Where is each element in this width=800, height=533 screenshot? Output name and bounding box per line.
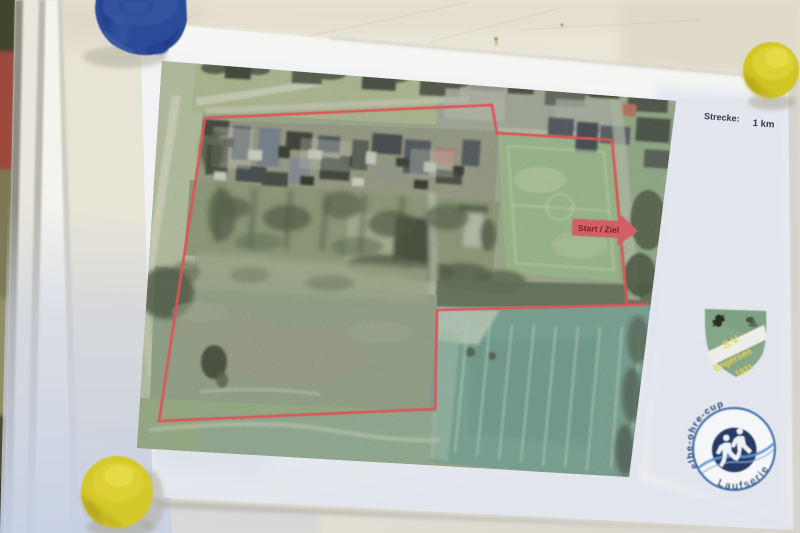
svg-text:1 km: 1 km <box>752 118 774 131</box>
